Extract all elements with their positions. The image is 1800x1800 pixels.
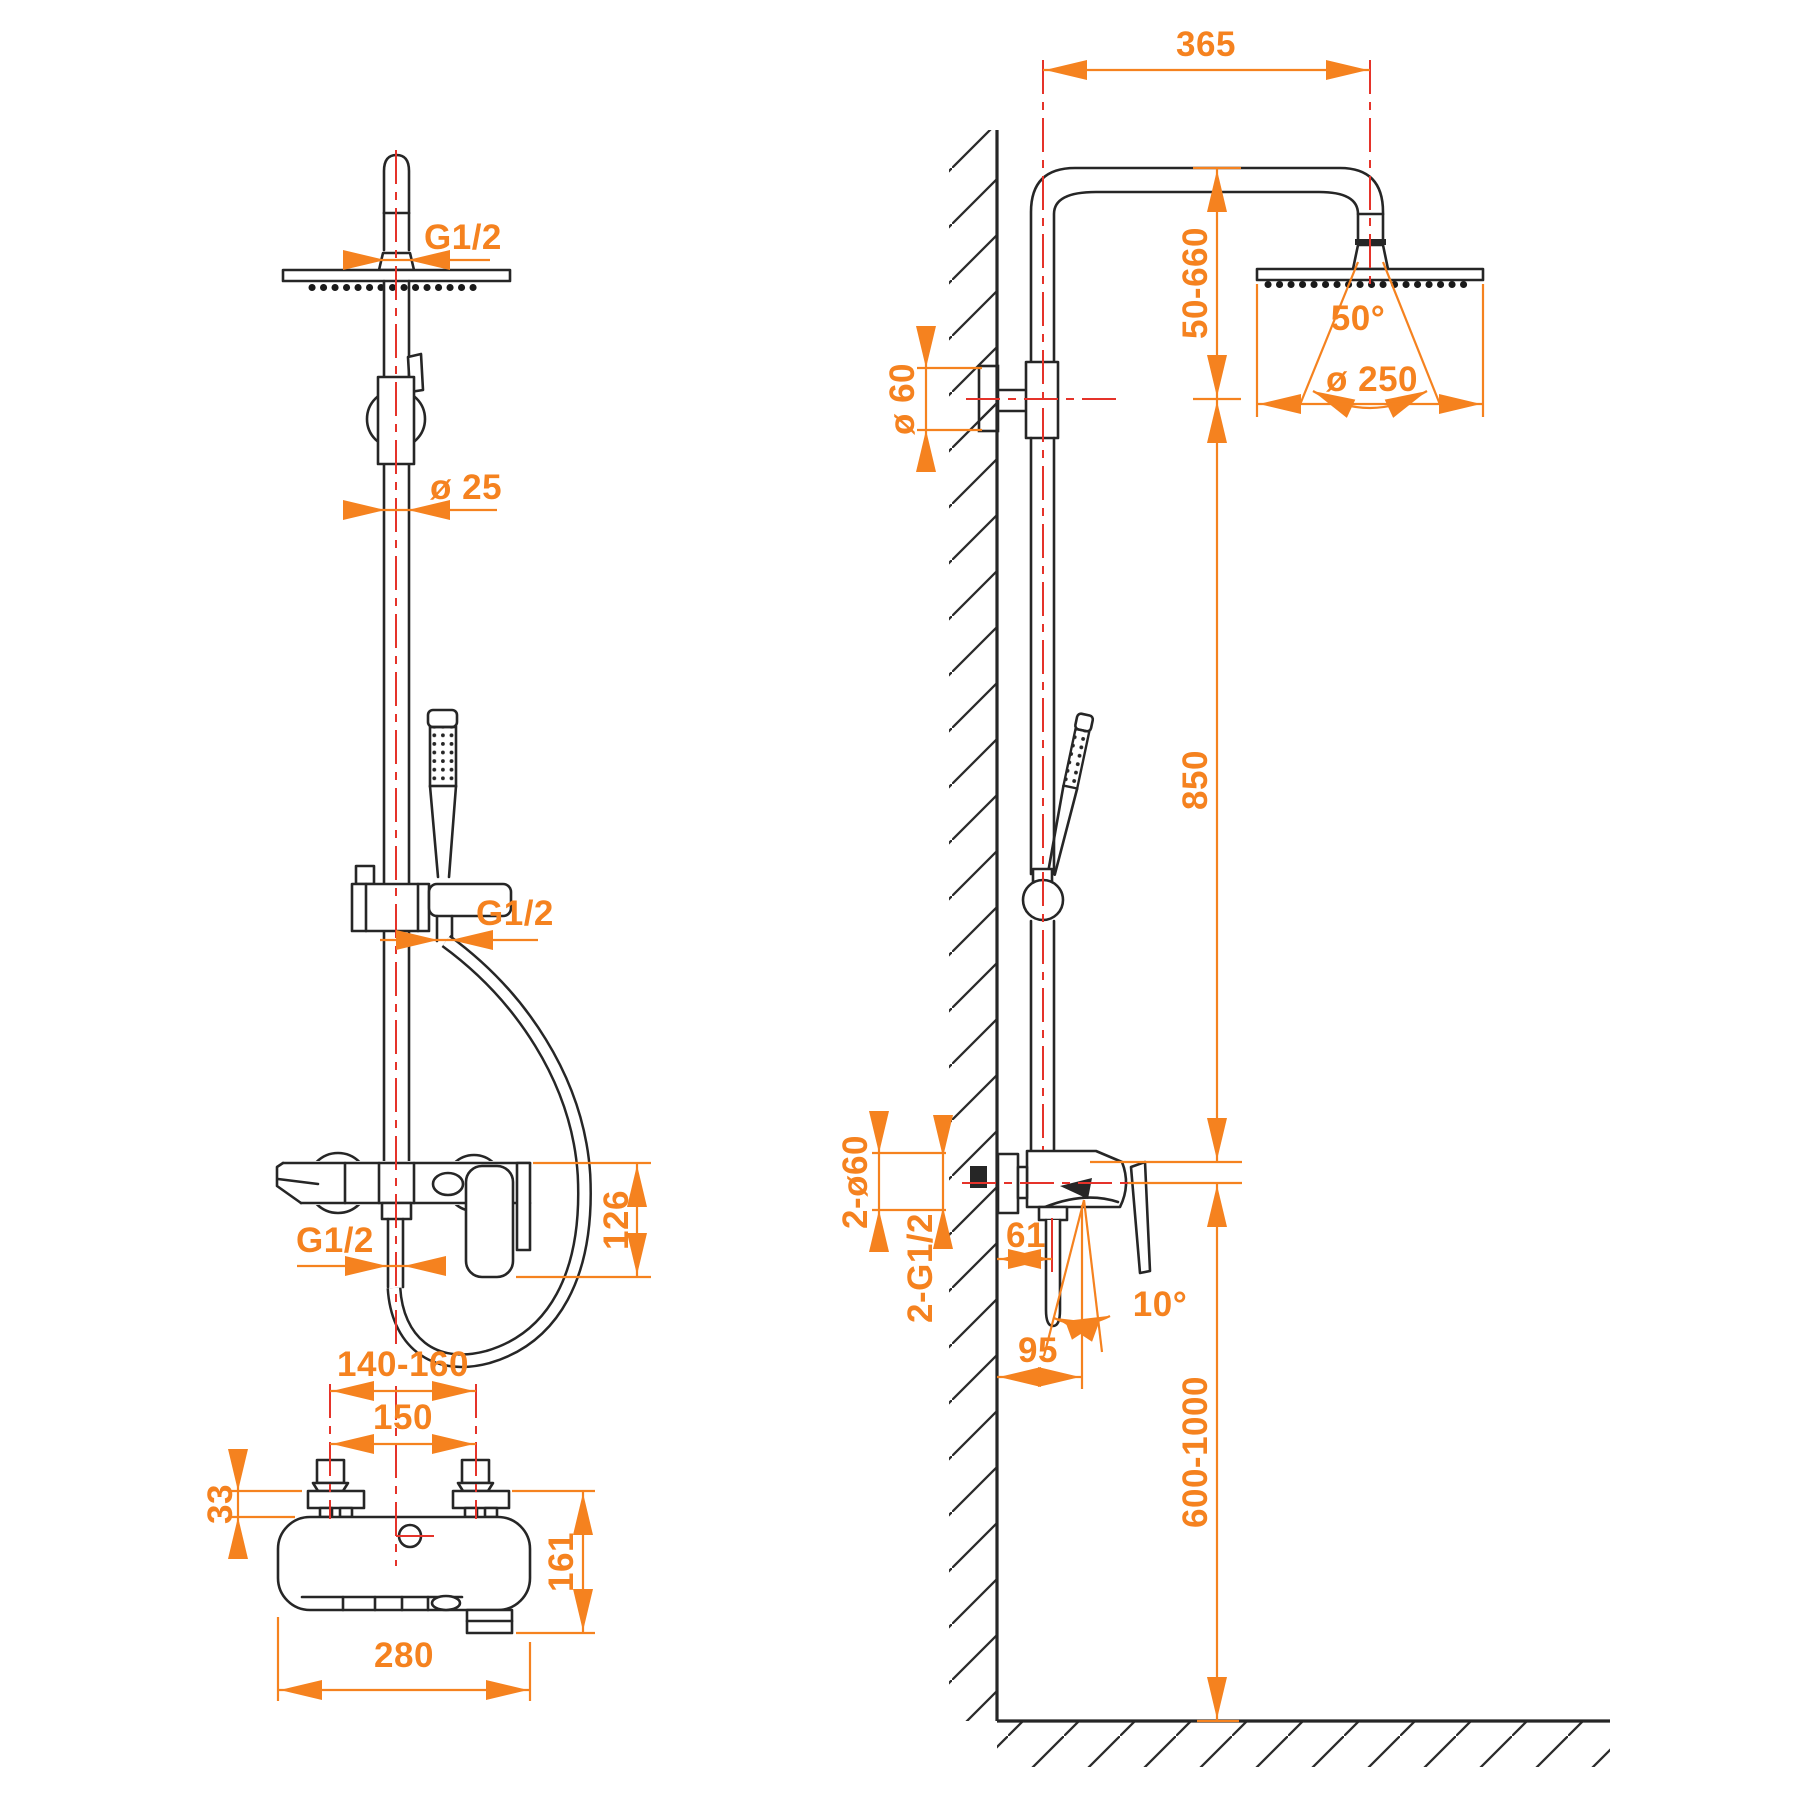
dia25-label: ø 25 xyxy=(430,468,502,507)
dim140-160-label: 140-160 xyxy=(337,1345,469,1384)
handshower-face xyxy=(430,727,456,786)
dim-365: 365 xyxy=(1043,25,1370,80)
dim61-label: 61 xyxy=(1006,1216,1046,1255)
dim-150: 150 xyxy=(330,1398,476,1454)
angle10-label: 10° xyxy=(1133,1285,1187,1324)
dim95-label: 95 xyxy=(1018,1331,1058,1370)
angle50-label: 50° xyxy=(1331,299,1385,338)
dim2-dia60-label: 2-ø60 xyxy=(836,1135,875,1229)
handshower-cap xyxy=(428,710,457,727)
mixer-plan-view xyxy=(278,1460,530,1633)
dim-50-660: 50-660 xyxy=(1176,168,1241,399)
handshower-side xyxy=(1044,713,1094,876)
dim-140-160: 140-160 xyxy=(330,1345,476,1401)
dim161-label: 161 xyxy=(542,1532,581,1592)
dim-600-1000: 600-1000 xyxy=(1176,1183,1239,1721)
dim2-g12-label: 2-G1/2 xyxy=(901,1213,940,1323)
dim-g12-outlet: G1/2 xyxy=(296,1221,446,1276)
wall-pipe-section xyxy=(970,1166,987,1188)
dim-2-g12: 2-G1/2 xyxy=(901,1115,953,1323)
shower-hose xyxy=(394,941,584,1361)
dim280-label: 280 xyxy=(374,1636,434,1675)
g12-outlet-label: G1/2 xyxy=(296,1221,374,1260)
slider-knob xyxy=(356,866,374,884)
dim150-label: 150 xyxy=(373,1398,433,1437)
dim850-label: 850 xyxy=(1176,750,1215,810)
floor-hatching xyxy=(997,1721,1610,1767)
side-view xyxy=(949,130,1610,1767)
dim-dia25: ø 25 xyxy=(343,468,502,520)
g12-hose-label: G1/2 xyxy=(476,894,554,933)
dim600-1000-label: 600-1000 xyxy=(1176,1376,1215,1528)
shower-system-technical-drawing: G1/2 ø 25 G1/2 126 G1/2 xyxy=(0,0,1800,1800)
dim33-label: 33 xyxy=(201,1484,240,1524)
dim50-660-label: 50-660 xyxy=(1176,227,1215,339)
dia250-label: ø 250 xyxy=(1326,360,1418,399)
mixer-handle xyxy=(466,1166,513,1277)
dim-angle10: 10° xyxy=(1044,1200,1187,1356)
dim126-label: 126 xyxy=(597,1190,636,1250)
g12-head-label: G1/2 xyxy=(424,218,502,257)
dim-g12-head: G1/2 xyxy=(343,218,502,270)
drawing-canvas: G1/2 ø 25 G1/2 126 G1/2 xyxy=(0,0,1800,1800)
mixer-back-tab xyxy=(517,1163,530,1250)
dim365-label: 365 xyxy=(1176,25,1236,64)
dim-61: 61 xyxy=(997,1216,1052,1269)
dim-850: 850 xyxy=(1176,399,1227,1162)
dia60-label: ø 60 xyxy=(883,363,922,435)
diverter-pull xyxy=(433,1173,463,1195)
mixer-handle-side xyxy=(1131,1162,1150,1273)
